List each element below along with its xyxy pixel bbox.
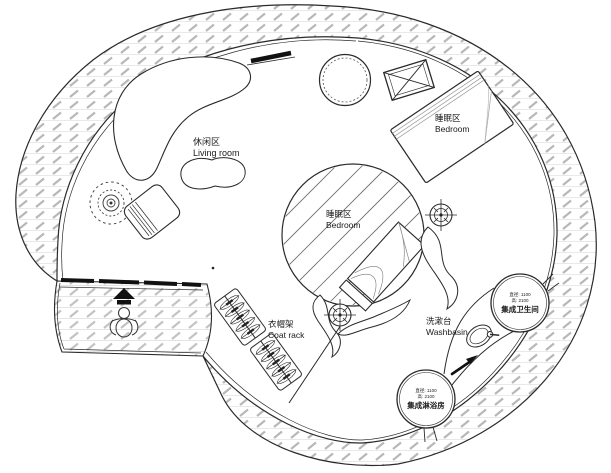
washbasin-label-en: Washbasin bbox=[426, 327, 468, 337]
deck-terrace bbox=[54, 281, 211, 356]
coat-rack-label-en: Coat rack bbox=[268, 330, 305, 340]
plant-icon bbox=[90, 182, 132, 224]
compass-target-icon-1 bbox=[425, 199, 457, 231]
floor-plan-drawing: 休闲区 Living room 睡眠区 Bedroom 睡眠区 Bedroom … bbox=[0, 0, 611, 473]
coffee-table bbox=[181, 158, 245, 189]
coat-rack-label-zh: 衣帽架 bbox=[268, 319, 294, 329]
ac-unit-box bbox=[384, 60, 435, 101]
wall-heater-bar bbox=[247, 53, 295, 65]
bedroom-upper-label-zh: 睡眠区 bbox=[435, 113, 461, 123]
shower-pod-name: 集成淋浴房 bbox=[406, 400, 445, 410]
bedroom-center-label-en: Bedroom bbox=[326, 220, 361, 230]
armchair bbox=[122, 182, 183, 242]
round-table bbox=[320, 55, 371, 106]
toilet-pod-diameter: 直径: 1100 bbox=[509, 291, 531, 297]
washbasin-label-zh: 洗漱台 bbox=[426, 316, 452, 326]
dot-mark bbox=[212, 267, 215, 270]
bedroom-upper-label-en: Bedroom bbox=[435, 124, 470, 134]
shower-pod-height: 高: 2100 bbox=[417, 393, 435, 400]
shower-pod-diameter: 直径: 1100 bbox=[415, 387, 437, 393]
flow-arrow-icon bbox=[452, 355, 478, 374]
living-room-label-en: Living room bbox=[193, 148, 240, 158]
coat-rack-2 bbox=[249, 333, 302, 392]
bedroom-center-label-zh: 睡眠区 bbox=[326, 209, 352, 219]
floor-plan-page: 休闲区 Living room 睡眠区 Bedroom 睡眠区 Bedroom … bbox=[0, 0, 611, 473]
toilet-pod-height: 高: 2100 bbox=[511, 297, 529, 304]
living-room-label-zh: 休闲区 bbox=[193, 136, 220, 147]
toilet-pod-name: 集成卫生间 bbox=[500, 304, 539, 314]
sink-basin bbox=[462, 318, 499, 352]
coat-rack-1 bbox=[213, 288, 266, 347]
